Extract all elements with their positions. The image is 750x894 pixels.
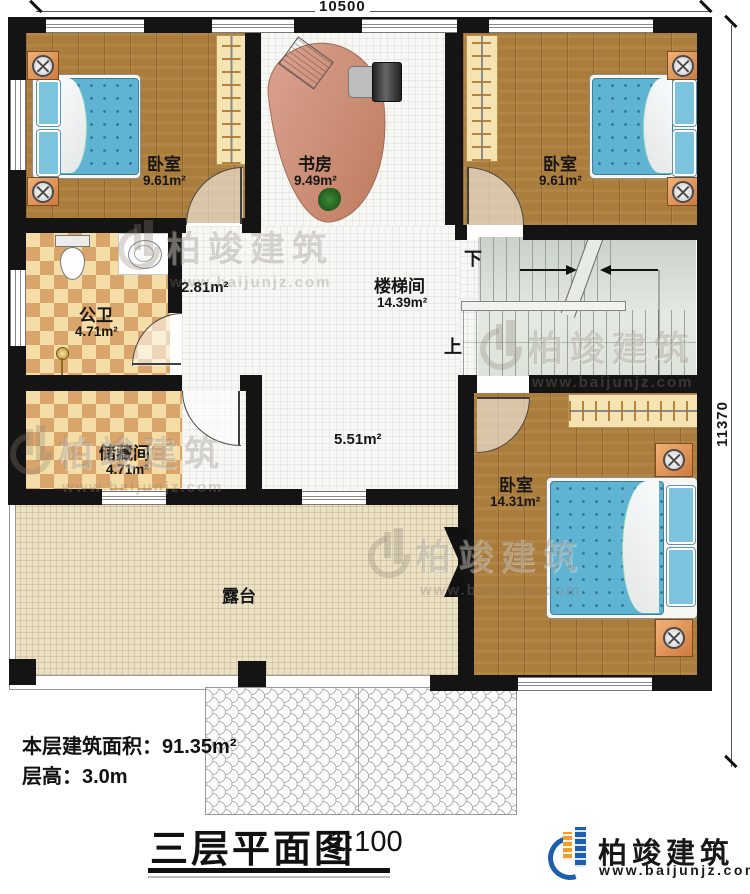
- computer-monitor-icon: [372, 62, 402, 102]
- room-label-bedroom-se: 卧室: [499, 477, 533, 494]
- nightstand: [655, 443, 693, 477]
- wall: [246, 375, 262, 505]
- room-label-bedroom-tl: 卧室: [147, 156, 181, 173]
- wardrobe: [568, 394, 699, 428]
- stair-handrail: [461, 301, 626, 311]
- room-label-bathroom: 公卫: [79, 307, 113, 324]
- brand-logo-block-blue: [575, 827, 586, 867]
- stair-up-label: 上: [444, 338, 462, 356]
- pillow: [667, 548, 695, 606]
- brand-logo-block-orange: [563, 832, 572, 860]
- lamp-icon: [672, 181, 694, 203]
- room-label-terrace: 露台: [222, 588, 256, 605]
- wall: [262, 489, 302, 505]
- pillow: [37, 130, 60, 176]
- lamp-icon: [32, 55, 54, 77]
- room-label-stairwell: 楼梯间: [374, 278, 425, 295]
- sink-icon: [128, 240, 162, 269]
- title-underline: [148, 868, 390, 873]
- stair-guide-line: [463, 342, 696, 343]
- hall-area-upper: 2.81m²: [181, 280, 229, 295]
- pillow: [673, 130, 696, 176]
- roof-seam: [358, 688, 359, 812]
- wall: [168, 233, 182, 313]
- top-dimension-label: 10500: [315, 0, 370, 15]
- door-leaf: [132, 363, 181, 365]
- room-area-storage: 4.71m²: [106, 463, 149, 477]
- roof-tile-area: [205, 687, 517, 815]
- wardrobe: [216, 35, 247, 165]
- wall: [458, 375, 477, 393]
- stair-arrow-line: [610, 269, 658, 271]
- window: [212, 19, 294, 33]
- window: [362, 19, 457, 33]
- brand-logo-icon: [548, 826, 592, 878]
- room-label-storage: 储藏间: [99, 445, 150, 462]
- stair-arrow-line: [520, 269, 568, 271]
- pillow: [667, 486, 695, 544]
- window: [10, 270, 26, 346]
- window: [10, 80, 26, 170]
- window: [489, 19, 653, 33]
- floor-plan-page: 10500 11370 下 上: [0, 0, 750, 894]
- wall: [245, 33, 261, 223]
- lamp-icon: [32, 181, 54, 203]
- pillow: [37, 80, 60, 126]
- pillow: [673, 80, 696, 126]
- hallway: [182, 226, 463, 493]
- nightstand: [27, 177, 59, 206]
- floor-height-label: 层高：: [22, 766, 82, 788]
- wall: [242, 218, 261, 233]
- title-underline-thin: [148, 876, 390, 878]
- room-label-study: 书房: [298, 156, 332, 173]
- window: [46, 19, 144, 33]
- brand-website: www.baijunjz.com: [599, 862, 750, 878]
- wall-marker-icon: [444, 527, 472, 559]
- wall: [166, 489, 262, 505]
- wall: [22, 218, 186, 233]
- page-title: 三层平面图: [150, 818, 355, 873]
- wall-marker-icon: [444, 565, 472, 597]
- wall: [22, 489, 102, 505]
- wardrobe: [466, 35, 498, 162]
- lamp-icon: [672, 55, 694, 77]
- lamp-icon: [663, 449, 685, 471]
- floor-height-value: 3.0m: [82, 766, 128, 788]
- toilet-tank: [55, 235, 90, 247]
- stair-guide-line: [658, 270, 660, 376]
- room-area-study: 9.49m²: [294, 174, 337, 188]
- pillar: [9, 659, 36, 685]
- wall: [445, 33, 463, 225]
- room-area-bedroom-tl: 9.61m²: [143, 174, 186, 188]
- lamp-icon: [663, 627, 685, 649]
- door-leaf: [477, 397, 529, 399]
- floor-drain-stem: [61, 358, 63, 376]
- wall: [455, 225, 467, 240]
- stair-treads-lower: [463, 310, 696, 376]
- wall: [523, 225, 697, 240]
- door-leaf: [240, 167, 242, 224]
- floor-area-label: 本层建筑面积：: [22, 736, 162, 758]
- nightstand: [667, 51, 699, 80]
- door-leaf: [467, 167, 469, 224]
- room-area-stairwell: 14.39m²: [377, 296, 427, 310]
- nightstand: [667, 177, 699, 206]
- door-leaf: [238, 391, 240, 445]
- hall-area-lower: 5.51m²: [334, 432, 382, 447]
- room-label-bedroom-tr: 卧室: [543, 156, 577, 173]
- floor-height-text: 层高：3.0m: [22, 760, 128, 789]
- stair-arrow-right-icon: [566, 265, 577, 275]
- stair-down-label: 下: [464, 250, 482, 268]
- nightstand: [27, 51, 59, 80]
- wall: [366, 489, 460, 505]
- wall: [697, 17, 712, 691]
- room-area-bedroom-tr: 9.61m²: [539, 174, 582, 188]
- terrace-door-threshold: [302, 491, 366, 505]
- scale-label: 1:100: [330, 826, 403, 859]
- window: [102, 491, 166, 505]
- floor-area-value: 91.35m²: [162, 736, 237, 758]
- wall: [529, 375, 712, 393]
- wall: [22, 375, 182, 391]
- room-area-bedroom-se: 14.31m²: [490, 495, 540, 509]
- window: [518, 677, 652, 691]
- pillar: [238, 661, 266, 687]
- floor-area-text: 本层建筑面积：91.35m²: [22, 730, 237, 759]
- nightstand: [655, 619, 693, 657]
- sink-basin: [134, 245, 154, 262]
- room-area-bathroom: 4.71m²: [75, 325, 118, 339]
- right-dimension-label: 11370: [714, 398, 731, 450]
- top-dimension-line: [36, 11, 712, 12]
- stair-arrow-left-icon: [600, 265, 611, 275]
- right-dimension-line: [731, 25, 732, 767]
